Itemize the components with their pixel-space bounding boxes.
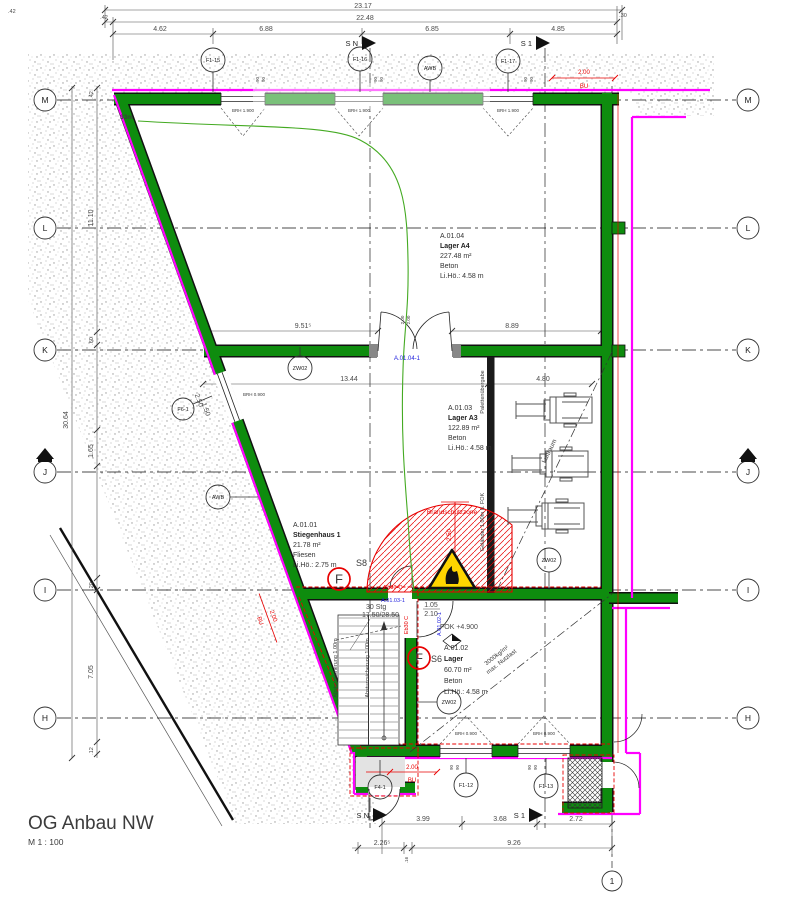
stair-count: 30 Stg: [366, 604, 386, 611]
room-a0101-id: A.01.01: [293, 522, 317, 529]
dim-corner: .42: [8, 9, 16, 15]
forklifts: [508, 393, 592, 533]
svg-text:90: 90: [255, 76, 260, 82]
svg-text:90: 90: [261, 76, 266, 82]
section-arrow-icon: [373, 808, 387, 822]
room-a0104-height: Li.Hö.: 4.58 m: [440, 273, 484, 280]
dim-bottom-s2: 3.68: [493, 816, 507, 823]
marker-awb-top: AWB: [424, 66, 437, 72]
section-sn-bottom: S N: [356, 811, 369, 820]
marker-awb-wall: AWB: [212, 495, 225, 501]
fire-zone-radius: 2.50: [447, 529, 453, 541]
section-arrow-icon: [362, 36, 376, 50]
brh-bottom-1: BRH 0.900: [455, 731, 478, 736]
section-s8-label: S8: [356, 558, 367, 568]
fire-rating-label-2: Eb30 C: [404, 616, 410, 634]
room-a0101-area: 21.78 m²: [293, 542, 321, 549]
dim-top-s2: 6.88: [259, 26, 273, 33]
grid-right-m: M: [744, 95, 751, 105]
dim-bottom-s1: 3.99: [416, 816, 430, 823]
wall-highlight-overlay: [253, 83, 490, 111]
leaf-size-2: 2.00: [406, 315, 411, 324]
grid-right-i: I: [747, 585, 749, 595]
room-a0103-id: A.01.03: [448, 405, 472, 412]
window-sill-label: BRH 0.900: [243, 392, 266, 397]
svg-text:90: 90: [523, 76, 528, 82]
svg-text:2.00: 2.00: [406, 765, 418, 771]
railing-label: Geländer 1.00m ü. FOK: [480, 492, 486, 551]
marker-f6-1: F6-1: [177, 407, 188, 413]
room-a0103-area: 122.89 m²: [448, 425, 480, 432]
door-shaft: [613, 762, 639, 788]
marker-f1-13: F1-13: [539, 784, 553, 790]
dim-left-s1: 11.10: [88, 209, 95, 226]
dim-top-s4: 4.85: [551, 26, 565, 33]
dim-top-offset-left: .42: [100, 15, 108, 21]
room-a0101-finish: Fliesen: [293, 552, 316, 559]
dim-top-offset-right: .30: [619, 13, 627, 19]
marker-f1-17: F1-17: [501, 59, 515, 65]
svg-text:90: 90: [527, 764, 532, 770]
svg-text:BU: BU: [580, 84, 588, 90]
dim-left-offset: .42: [89, 91, 95, 99]
brh-top-2: BRH 1.900: [348, 108, 371, 113]
svg-text:BU: BU: [408, 778, 416, 784]
room-a0101: A.01.01 Stiegenhaus 1 21.78 m² Fliesen L…: [293, 522, 341, 569]
dim-left-s2: .60: [89, 337, 95, 345]
grid-right-k: K: [745, 345, 751, 355]
pilaster-K: [612, 345, 625, 357]
title-block: OG Anbau NW M 1 : 100: [28, 813, 154, 847]
room-a0101-name: Stiegenhaus 1: [293, 532, 341, 539]
marker-f1-12: F1-12: [459, 783, 473, 789]
room-a0102-area: 60.70 m²: [444, 667, 472, 674]
load-label: 3000kg/m² max. Nutzlast: [481, 642, 519, 676]
room-a0104-area: 227.48 m²: [440, 253, 472, 260]
pilaster-L: [612, 222, 625, 234]
airspace-boundary: [497, 352, 612, 590]
room-a0104: A.01.04 Lager A4 227.48 m² Beton Li.Hö.:…: [440, 233, 484, 280]
dim-left-overall: 30.64: [63, 411, 70, 429]
guard-label-right: Absturzsicherung 1.00m: [365, 638, 371, 698]
dim-top-s1: 4.62: [153, 26, 167, 33]
floorplan-sheet: 23.17 22.48 .42 .42 .30 4.62 6.88 6.85 4…: [0, 0, 785, 901]
grid-left-i: I: [44, 585, 46, 595]
svg-text:90: 90: [529, 76, 534, 82]
dim-k-left: 9.51⁵: [295, 323, 312, 330]
room-a0103-height: Li.Hö.: 4.58 m: [448, 445, 492, 452]
level-label: FOK +4.900: [440, 624, 478, 631]
marker-zw02-c: ZW02: [442, 700, 457, 706]
svg-text:2.00: 2.00: [578, 70, 590, 76]
shaft-crosshatch: [568, 758, 602, 808]
drawing-scale: M 1 : 100: [28, 837, 64, 847]
dim-bottom-b: 9.26: [507, 840, 521, 847]
brh-top-3: BRH 1.900: [497, 108, 520, 113]
fire-protection-zone: Brandschutzzone 2.50: [367, 502, 512, 592]
escape-distance-label: 33m: [120, 114, 133, 121]
dim-i-right: 4.80: [536, 376, 550, 383]
brh-bottom-2: BRH 0.900: [533, 731, 556, 736]
room-a0104-finish: Beton: [440, 263, 458, 270]
marker-f1-15: F1-15: [206, 58, 220, 64]
svg-text:F: F: [415, 651, 423, 666]
dim-bottom-s3: 2.72: [569, 816, 583, 823]
grid-right-j: J: [746, 467, 750, 477]
dim-left-s4: .20: [89, 582, 95, 590]
marker-f1-16: F1-16: [353, 57, 367, 63]
section-s6-label: S6: [431, 654, 442, 664]
fire-rating-label: Eb30-C: [384, 585, 403, 591]
svg-text:90: 90: [455, 764, 460, 770]
grid-right-l: L: [746, 223, 751, 233]
room-a0102-name: Lager: [444, 656, 463, 663]
drawing-title: OG Anbau NW: [28, 813, 154, 834]
dim-top-s3: 6.85: [425, 26, 439, 33]
door-width: 1.05: [424, 602, 438, 609]
marker-zw02-b: ZW02: [542, 558, 557, 564]
floorplan-drawing: 23.17 22.48 .42 .42 .30 4.62 6.88 6.85 4…: [0, 0, 785, 901]
room-a0102-finish: Beton: [444, 678, 462, 685]
dim-k-right: 8.89: [505, 323, 519, 330]
guard-label-left: Absturzsicherung 1.00m: [333, 638, 339, 698]
dim-bottom-a: 2.26⁵: [374, 840, 391, 847]
room-a0103-finish: Beton: [448, 435, 466, 442]
grid-left-k: K: [42, 345, 48, 355]
svg-text:90: 90: [373, 76, 378, 82]
dim-top-total: 23.17: [354, 3, 372, 10]
room-a0101-height: Li.Hö.: 2.75 m: [293, 562, 337, 569]
room-a0102-id: A.01.02: [444, 645, 468, 652]
grid-left-m: M: [41, 95, 48, 105]
svg-text:90: 90: [449, 764, 454, 770]
room-a0103-name: Lager A3: [448, 415, 478, 422]
marker-f4-1: F4-1: [374, 785, 385, 791]
svg-text:90: 90: [379, 76, 384, 82]
section-s1-bottom: S 1: [514, 811, 525, 820]
grid-right-h: H: [745, 713, 751, 723]
fire-zone-label: Brandschutzzone: [427, 509, 478, 516]
dim-left-s3: 1.65: [88, 444, 95, 458]
section-sn-top: S N: [345, 39, 358, 48]
section-arrow-icon: [529, 808, 543, 822]
dim-left-s6: .12: [89, 747, 95, 755]
brh-top-1: BRH 1.900: [232, 108, 255, 113]
marker-zw02-a: ZW02: [293, 366, 308, 372]
dim-i-left: 13.44: [340, 376, 358, 383]
pallet-transfer-label: Palettenübergabe: [480, 370, 486, 413]
grid-axis-1: 1: [610, 876, 615, 886]
dim-top-subtotal: 22.48: [356, 15, 374, 22]
dim-left-s5: 7.05: [88, 665, 95, 679]
room-a0102: A.01.02 Lager 60.70 m² Beton Li.Hö.: 4.5…: [444, 645, 488, 696]
svg-text:90: 90: [533, 764, 538, 770]
section-arrow-icon: [536, 36, 550, 50]
dim-bottom-gap: .16: [404, 856, 409, 863]
door-label-a0104-1: A.01.04-1: [394, 356, 421, 362]
svg-text:F: F: [335, 572, 343, 587]
room-a0104-name: Lager A4: [440, 243, 470, 250]
grid-left-l: L: [43, 223, 48, 233]
grid-left-j: J: [43, 467, 47, 477]
door-height: 2.10: [424, 611, 438, 618]
section-s1-top: S 1: [521, 39, 532, 48]
grid-left-h: H: [42, 713, 48, 723]
leaf-size-1: 2.00: [400, 315, 405, 324]
stair-ratio: 17.50/28.50: [362, 612, 399, 619]
room-a0104-id: A.01.04: [440, 233, 464, 240]
